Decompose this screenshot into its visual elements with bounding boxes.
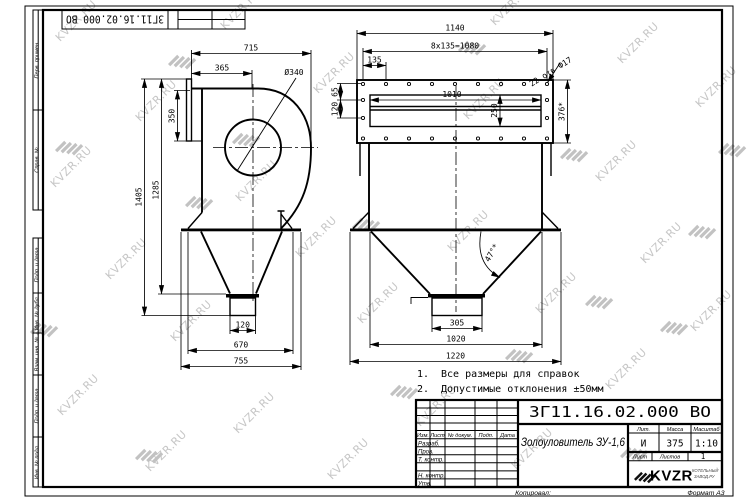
masshtab-label: Масштаб <box>693 427 720 433</box>
note-1-number: 1. <box>417 369 429 380</box>
holes-note: 22 отв Ф17 <box>528 55 574 88</box>
margin-label-vzam-inv: Взам. инв. № <box>35 337 41 372</box>
watermark-logo-icon <box>232 126 260 154</box>
dim-350: 350 <box>168 109 177 124</box>
massa-label: Масса <box>667 427 684 433</box>
col-izm: Изм. <box>417 433 429 439</box>
dim-670: 670 <box>234 341 249 350</box>
dim-715: 715 <box>244 44 259 53</box>
row-t-kontr: Т. контр. <box>418 457 444 463</box>
dim-250: 250 <box>490 103 499 118</box>
watermark-text: KVZR.RU <box>603 346 650 393</box>
margin-label-sprav-no: Справ. № <box>35 147 41 172</box>
left-view-dimension-lines <box>145 54 312 367</box>
massa-value: 375 <box>666 439 683 450</box>
drawing-sheet: KVZR.RUKVZR.RUKVZR.RUKVZR.RUKVZR.RUKVZR.… <box>0 0 750 500</box>
title-block: Изм. Лист № докум. Подп. Дата Разраб. Пр… <box>416 400 725 497</box>
damper-lines <box>370 107 541 111</box>
dim-376: 376* <box>558 102 567 121</box>
inlet-flange <box>187 79 192 141</box>
corner-stamp: ЗГ11.16.02.000 ВО <box>62 10 245 29</box>
col-n-dokum: № докум. <box>448 433 473 439</box>
listov-label: Листов <box>659 455 680 461</box>
right-hopper-flange <box>350 229 561 232</box>
note-2-number: 2. <box>417 384 429 395</box>
row-utv: Утв. <box>417 482 432 488</box>
margin-label-podp-data-top: Подп. и дата <box>35 247 41 282</box>
left-outlet-flange <box>226 294 259 298</box>
kopiroval-label: Копировал: <box>515 490 551 497</box>
dim-755: 755 <box>234 357 249 366</box>
watermark-text: KVZR.RU <box>533 270 580 317</box>
left-hopper-gussets <box>188 211 292 229</box>
col-list: Лист <box>429 433 445 439</box>
list-label: Лист <box>632 455 648 461</box>
corner-designation: ЗГ11.16.02.000 ВО <box>66 13 164 25</box>
note-2-text: Допустимые отклонения ±50мм <box>441 384 604 395</box>
lit-label: Лит. <box>636 427 650 433</box>
row-n-kontr: Н. контр. <box>418 474 445 480</box>
watermark-logo-icon <box>185 189 213 217</box>
listov-value: 1 <box>701 452 706 461</box>
watermark-text: KVZR.RU <box>293 214 340 261</box>
title-block-rows: Разраб. Пров. Т. контр. Н. контр. Утв. <box>417 441 445 487</box>
left-hopper-flange <box>181 229 301 232</box>
logo-sub-line2: ЗАВОД.РУ <box>694 474 716 479</box>
watermark-logo-icon <box>168 48 196 76</box>
watermark-text: KVZR.RU <box>488 0 535 28</box>
dim-1405: 1405 <box>135 187 144 206</box>
watermark-text: KVZR.RU <box>638 220 685 267</box>
row-prov: Пров. <box>418 449 434 455</box>
dia340-leader <box>237 78 296 171</box>
logo-sub-line1: КОТЕЛЬНЫЙ <box>692 468 718 473</box>
watermark-text: KVZR.RU <box>103 236 150 283</box>
lit-value: И <box>641 439 647 450</box>
scroll-outline <box>192 89 312 229</box>
title-block-header: Изм. Лист № докум. Подп. Дата <box>417 433 515 439</box>
margin-label-perv-primen: Перв. примен. <box>35 41 41 78</box>
dim-120-left: 120 <box>235 321 250 330</box>
right-outlet-flange <box>428 294 485 298</box>
dim-1285: 1285 <box>152 180 161 199</box>
dim-65: 65 <box>331 87 340 97</box>
title-designation: ЗГ11.16.02.000 ВО <box>529 403 711 421</box>
margin-column: Перв. примен. Справ. № Подп. и дата Инв.… <box>33 10 43 487</box>
watermark-text: KVZR.RU <box>55 372 102 419</box>
dim-angle-47: 47°* <box>483 242 501 263</box>
col-data: Дата <box>499 433 515 439</box>
margin-label-inv-podl: Инв. № подл. <box>35 445 41 480</box>
right-hopper-gussets <box>353 212 558 229</box>
dim-120-right: 120 <box>331 102 340 117</box>
dim-8x135: 8x135=1080 <box>431 42 479 51</box>
watermark-text: KVZR.RU <box>688 288 735 335</box>
dim-1140: 1140 <box>445 24 464 33</box>
watermark-text: KVZR.RU <box>231 390 278 437</box>
product-name: Золоуловитель ЗУ-1,6 <box>521 435 625 449</box>
watermark-text: KVZR.RU <box>218 0 265 32</box>
dim-dia340: Ø340 <box>284 67 303 77</box>
company-logo: KVZR КОТЕЛЬНЫЙ ЗАВОД.РУ <box>634 467 718 489</box>
format-label: Формат А3 <box>687 490 724 497</box>
watermark-logo-icon <box>560 141 588 169</box>
watermark-text: KVZR.RU <box>233 158 280 205</box>
watermark-text: KVZR.RU <box>355 280 402 327</box>
margin-label-podp-data-bottom: Подп. и дата <box>35 388 41 423</box>
watermark-text: KVZR.RU <box>325 436 372 483</box>
masshtab-value: 1:10 <box>695 439 718 450</box>
watermark-text: KVZR.RU <box>615 20 662 67</box>
notes: 1. Все размеры для справок 2. Допустимые… <box>417 369 604 395</box>
watermark-logo-icon <box>505 342 533 370</box>
dim-1020: 1020 <box>446 335 465 344</box>
watermark-text: KVZR.RU <box>593 138 640 185</box>
note-1-text: Все размеры для справок <box>441 369 579 380</box>
kvzr-logo-text: KVZR <box>650 468 693 485</box>
lit-massa-masshtab: Лит. Масса Масштаб И 375 1:10 <box>636 427 720 450</box>
dim-1220: 1220 <box>446 352 465 361</box>
watermark-text: KVZR.RU <box>168 298 215 345</box>
watermark-logo-icon <box>390 378 418 406</box>
right-outlet-box <box>432 298 482 316</box>
dim-1010: 1010 <box>442 90 461 99</box>
dim-365: 365 <box>215 64 230 73</box>
watermark-logo-icon <box>660 314 688 342</box>
dim-135: 135 <box>367 56 382 65</box>
drawing-svg: KVZR.RUKVZR.RUKVZR.RUKVZR.RUKVZR.RUKVZR.… <box>0 0 750 500</box>
row-razrab: Разраб. <box>418 441 440 447</box>
outlet-bracket <box>411 298 428 305</box>
watermark-logo-icon <box>585 288 613 316</box>
left-outlet-box <box>230 298 256 316</box>
col-podp: Подп. <box>479 433 494 439</box>
margin-label-inv-dubl: Инв. № дубл. <box>35 296 41 330</box>
watermark-logo-icon <box>688 218 716 246</box>
body-walls <box>360 143 551 229</box>
left-hopper <box>201 232 282 294</box>
dim-305: 305 <box>450 319 465 328</box>
